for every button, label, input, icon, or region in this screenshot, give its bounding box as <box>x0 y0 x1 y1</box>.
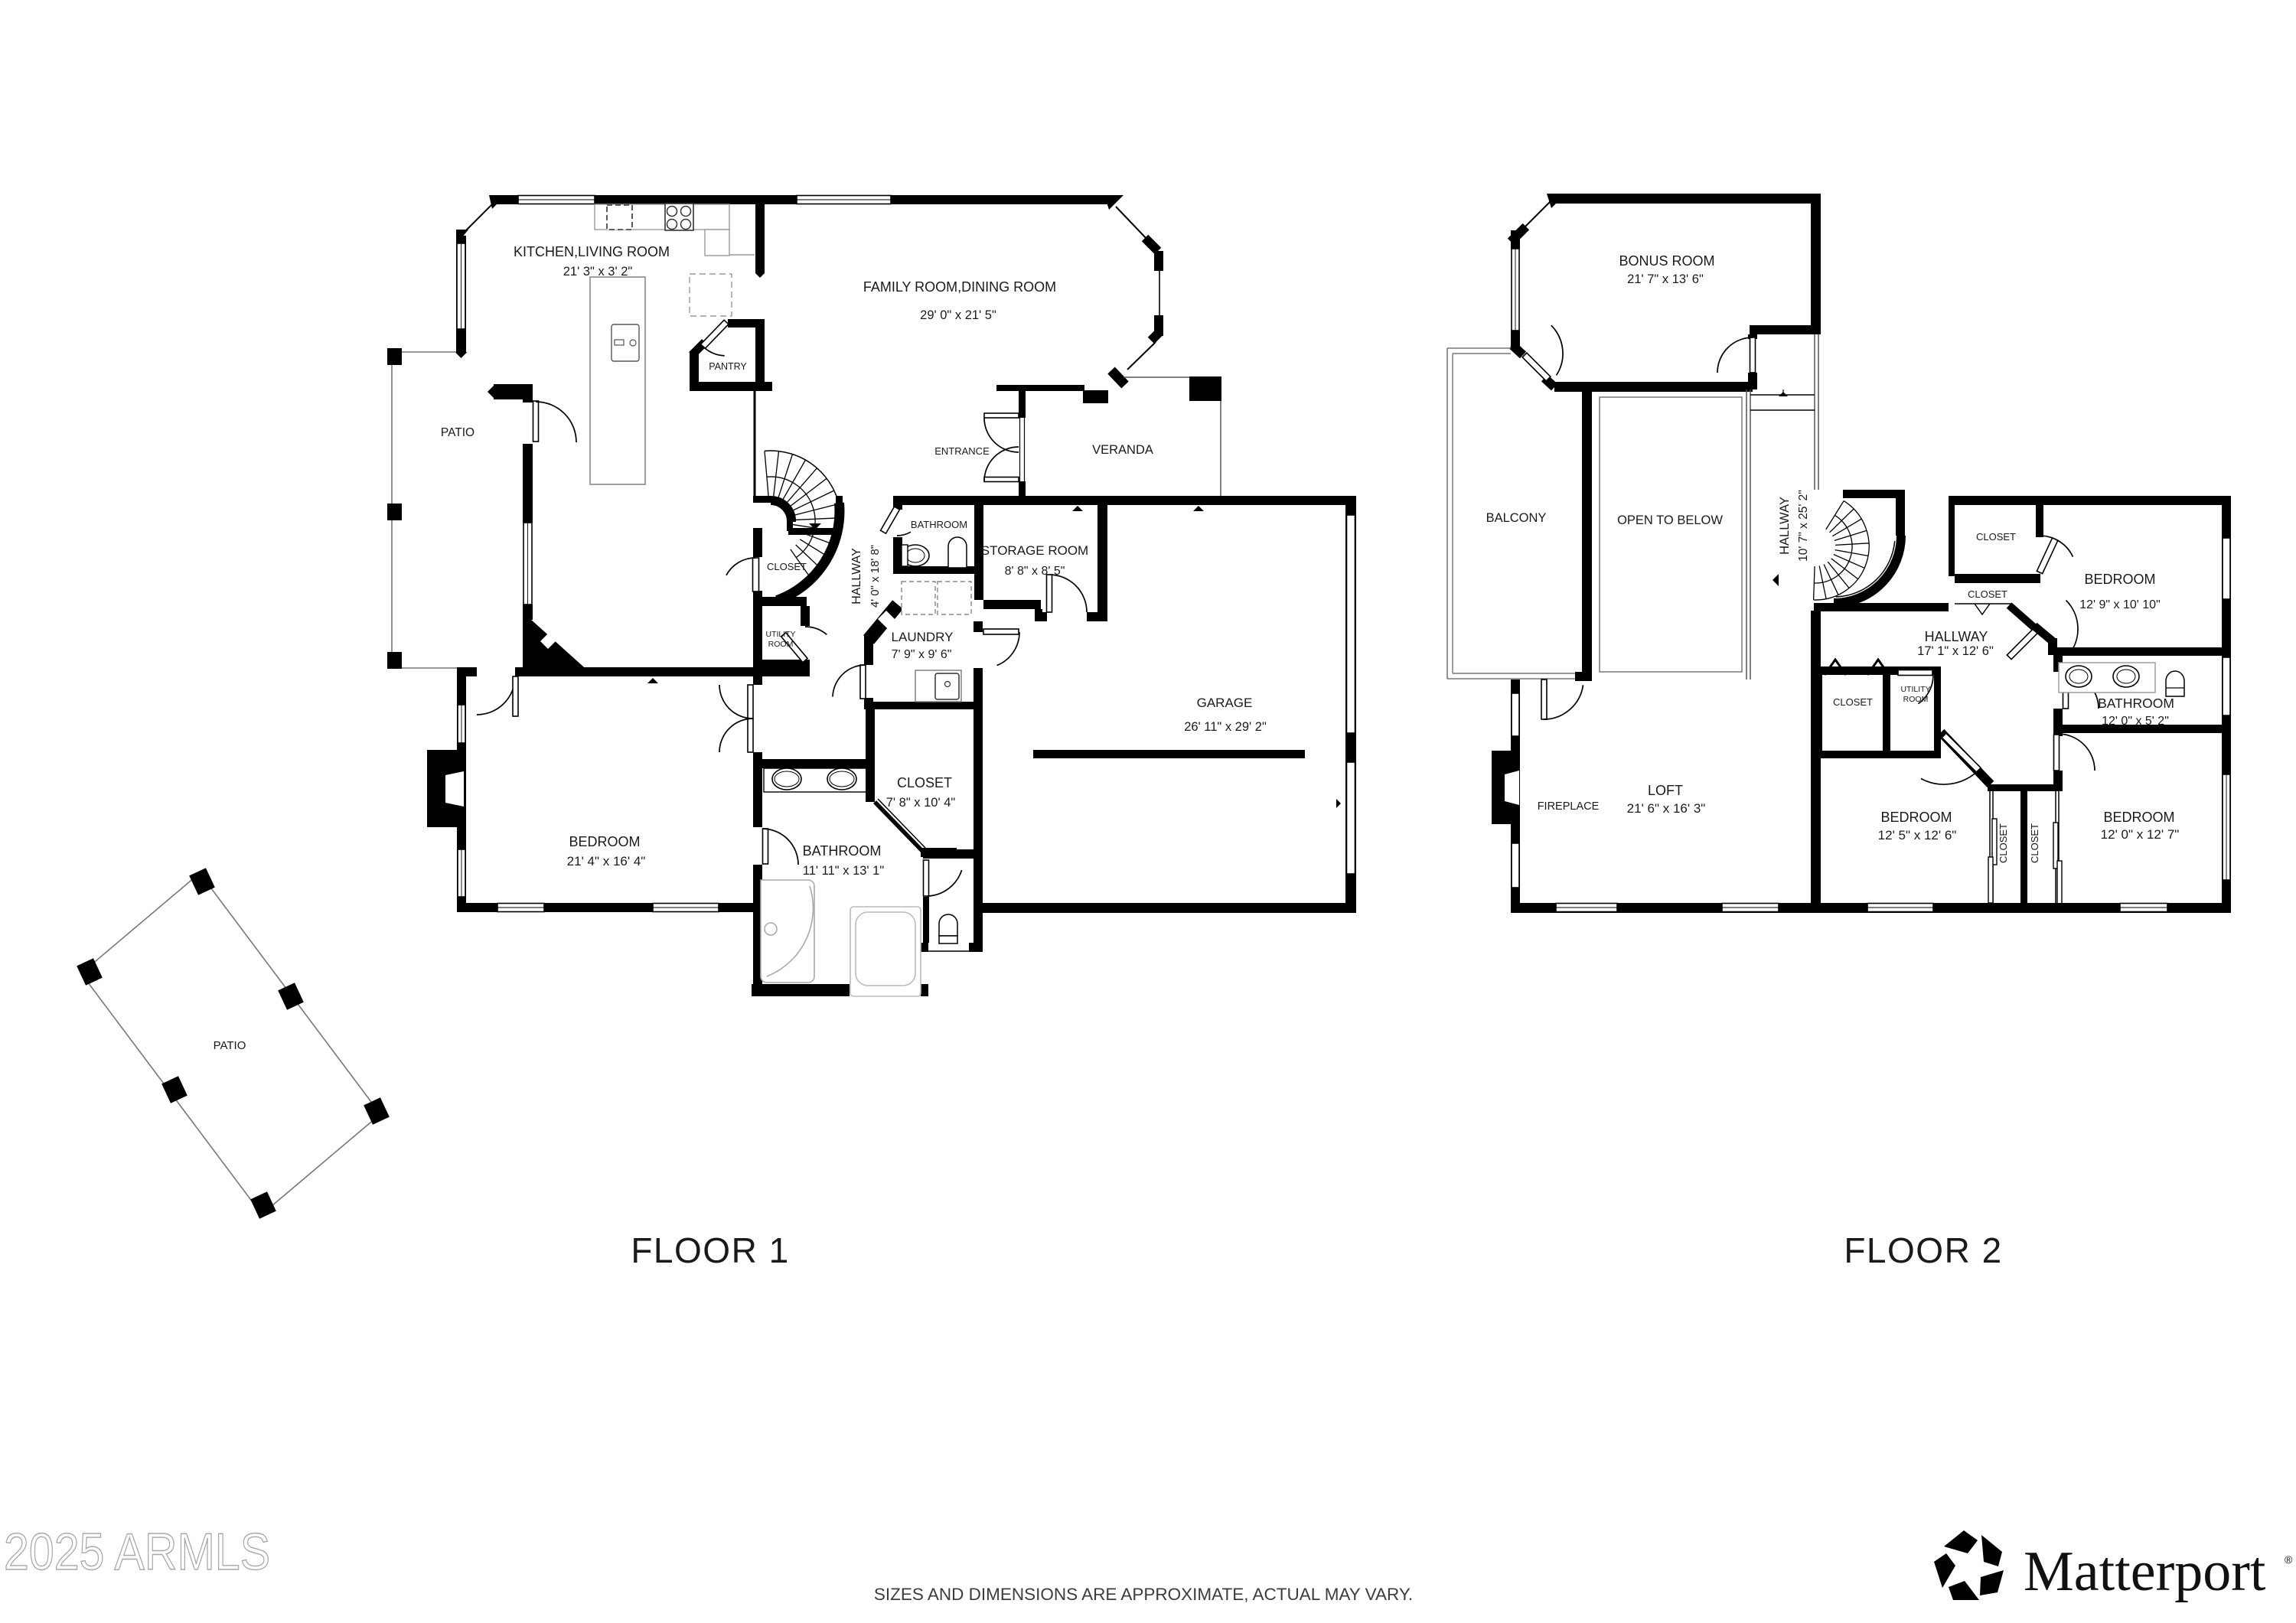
svg-text:GARAGE: GARAGE <box>1197 696 1253 710</box>
svg-text:BATHROOM: BATHROOM <box>2098 696 2174 711</box>
svg-text:VERANDA: VERANDA <box>1092 443 1153 457</box>
svg-text:CLOSET: CLOSET <box>1976 531 2016 543</box>
svg-text:BEDROOM: BEDROOM <box>2084 572 2155 587</box>
svg-text:BATHROOM: BATHROOM <box>911 519 967 530</box>
svg-text:KITCHEN,LIVING ROOM: KITCHEN,LIVING ROOM <box>514 244 670 259</box>
svg-text:OPEN TO BELOW: OPEN TO BELOW <box>1617 513 1723 527</box>
svg-text:Matterport: Matterport <box>2024 1540 2266 1603</box>
svg-text:LAUNDRY: LAUNDRY <box>892 630 954 644</box>
svg-text:CLOSET: CLOSET <box>1833 696 1873 708</box>
svg-text:2025 ARMLS: 2025 ARMLS <box>4 1523 270 1581</box>
svg-text:26' 11" x 29' 2": 26' 11" x 29' 2" <box>1184 720 1267 734</box>
svg-text:UTILITY: UTILITY <box>765 630 795 639</box>
svg-text:ENTRANCE: ENTRANCE <box>934 445 990 457</box>
svg-text:STORAGE ROOM: STORAGE ROOM <box>981 543 1088 558</box>
svg-text:BEDROOM: BEDROOM <box>569 834 640 849</box>
svg-text:7' 8" x 10' 4": 7' 8" x 10' 4" <box>886 796 956 810</box>
svg-text:FIREPLACE: FIREPLACE <box>1538 800 1600 813</box>
svg-text:PATIO: PATIO <box>214 1039 246 1052</box>
svg-text:21' 3" x 3' 2": 21' 3" x 3' 2" <box>563 265 633 279</box>
svg-text:21' 4" x 16' 4": 21' 4" x 16' 4" <box>567 854 646 869</box>
svg-text:CLOSET: CLOSET <box>1968 588 2007 600</box>
svg-text:17' 1" x 12' 6": 17' 1" x 12' 6" <box>1917 644 1994 658</box>
svg-text:®: ® <box>2285 1553 2293 1566</box>
svg-text:8' 8" x 8' 5": 8' 8" x 8' 5" <box>1005 565 1065 578</box>
svg-text:HALLWAY: HALLWAY <box>1778 497 1792 555</box>
svg-text:12' 0" x 5' 2": 12' 0" x 5' 2" <box>2102 715 2169 728</box>
svg-text:7' 9" x 9' 6": 7' 9" x 9' 6" <box>892 648 952 661</box>
svg-text:BATHROOM: BATHROOM <box>803 843 882 859</box>
svg-text:CLOSET: CLOSET <box>2029 823 2040 863</box>
svg-text:21' 7" x 13' 6": 21' 7" x 13' 6" <box>1627 272 1704 286</box>
svg-text:BALCONY: BALCONY <box>1486 511 1547 525</box>
svg-text:PATIO: PATIO <box>441 426 475 439</box>
svg-text:FAMILY ROOM,DINING ROOM: FAMILY ROOM,DINING ROOM <box>863 279 1056 295</box>
svg-text:HALLWAY: HALLWAY <box>1925 629 1988 644</box>
svg-text:12' 9" x 10' 10": 12' 9" x 10' 10" <box>2079 598 2161 611</box>
svg-text:UTILITY: UTILITY <box>1900 685 1930 694</box>
svg-text:PANTRY: PANTRY <box>709 361 747 372</box>
svg-text:HALLWAY: HALLWAY <box>850 548 863 605</box>
svg-text:BONUS ROOM: BONUS ROOM <box>1619 253 1714 269</box>
svg-text:BEDROOM: BEDROOM <box>1880 810 1952 825</box>
svg-text:12' 0" x 12' 7": 12' 0" x 12' 7" <box>2101 827 2180 842</box>
svg-text:CLOSET: CLOSET <box>897 775 952 790</box>
svg-text:ROOM: ROOM <box>768 640 794 649</box>
svg-text:SIZES AND DIMENSIONS ARE APPRO: SIZES AND DIMENSIONS ARE APPROXIMATE, AC… <box>874 1585 1413 1604</box>
svg-text:11' 11" x 13' 1": 11' 11" x 13' 1" <box>803 864 885 878</box>
svg-text:BEDROOM: BEDROOM <box>2103 810 2174 825</box>
svg-text:CLOSET: CLOSET <box>1998 823 2009 863</box>
svg-text:10' 7" x 25' 2": 10' 7" x 25' 2" <box>1797 490 1810 562</box>
svg-text:ROOM: ROOM <box>1903 695 1929 704</box>
svg-text:FLOOR 2: FLOOR 2 <box>1844 1230 2002 1270</box>
svg-text:FLOOR 1: FLOOR 1 <box>631 1230 789 1270</box>
svg-text:29' 0" x 21' 5": 29' 0" x 21' 5" <box>920 308 996 322</box>
svg-text:4' 0" x 18' 8": 4' 0" x 18' 8" <box>869 545 882 608</box>
svg-text:CLOSET: CLOSET <box>767 561 807 572</box>
svg-text:LOFT: LOFT <box>1648 783 1683 798</box>
svg-text:12' 5" x 12' 6": 12' 5" x 12' 6" <box>1878 828 1957 842</box>
svg-text:21' 6" x 16' 3": 21' 6" x 16' 3" <box>1627 801 1706 816</box>
